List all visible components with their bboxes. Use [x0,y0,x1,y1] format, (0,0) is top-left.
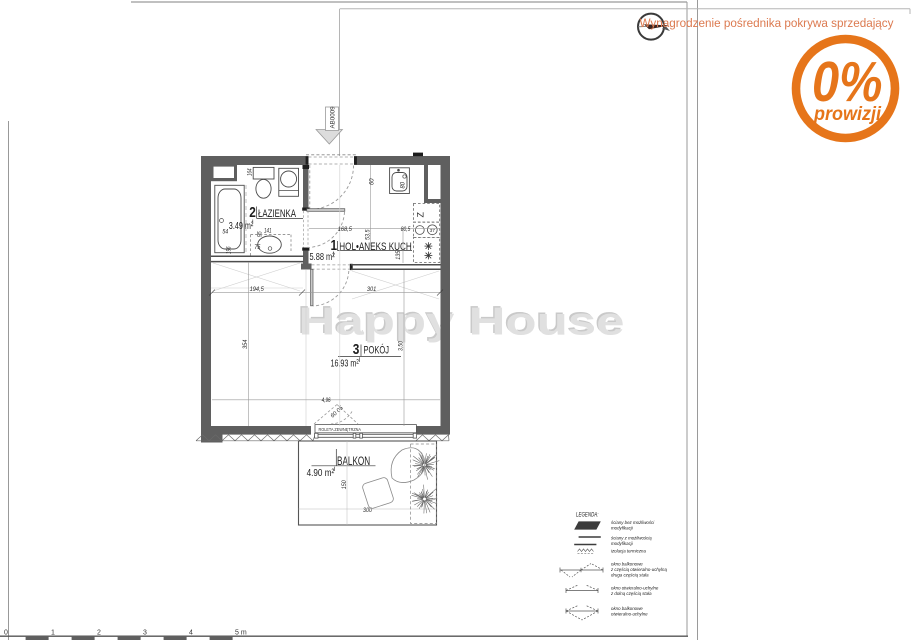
svg-text:354: 354 [242,339,249,349]
svg-text:300: 300 [363,507,372,514]
svg-text:0: 0 [4,630,8,637]
svg-text:141: 141 [264,228,272,235]
svg-text:5 m: 5 m [235,630,247,637]
svg-text:izolacja termiczna: izolacja termiczna [611,549,646,554]
svg-text:16.93 m²: 16.93 m² [331,359,360,370]
svg-text:Wynagrodzenie pośrednika pokry: Wynagrodzenie pośrednika pokrywa sprzeda… [640,16,895,30]
svg-text:3: 3 [143,630,147,637]
svg-text:80,5: 80,5 [401,226,411,233]
svg-text:okno otwieralno-uchylne: okno otwieralno-uchylne [611,586,659,591]
svg-text:80: 80 [399,182,406,189]
svg-text:95: 95 [257,231,264,237]
svg-text:prowizji: prowizji [813,103,881,125]
svg-text:POKÓJ: POKÓJ [364,344,390,357]
svg-text:53,5: 53,5 [364,229,371,240]
svg-text:ściany bez możliwości: ściany bez możliwości [611,520,655,525]
svg-text:2: 2 [97,630,101,637]
svg-text:z częścią otwieralno-uchylną: z częścią otwieralno-uchylną [610,567,667,572]
svg-text:3.49 m²: 3.49 m² [229,221,254,232]
svg-text:168,5: 168,5 [338,226,353,233]
svg-text:BALKON: BALKON [337,455,370,468]
svg-text:okno balkonowe: okno balkonowe [611,606,643,611]
svg-text:1: 1 [51,630,55,637]
svg-text:2: 2 [249,205,256,221]
svg-text:otwieralno-uchylne: otwieralno-uchylne [611,612,648,617]
svg-text:3,50: 3,50 [397,341,404,351]
svg-text:ROLETA ZEWNĘTRZNA: ROLETA ZEWNĘTRZNA [319,427,362,432]
svg-text:LEGENDA:: LEGENDA: [576,512,599,519]
svg-text:4,96: 4,96 [322,397,331,404]
svg-text:4: 4 [189,630,193,637]
svg-text:modyfikacji: modyfikacji [611,541,634,546]
svg-text:60: 60 [369,178,376,185]
svg-text:modyfikacji: modyfikacji [611,526,634,531]
svg-text:Z: Z [416,212,426,218]
svg-text:druga częścią stała: druga częścią stała [611,573,649,578]
svg-text:75: 75 [254,244,261,251]
svg-text:3: 3 [353,342,360,358]
svg-text:AB0009: AB0009 [329,106,336,129]
svg-text:5.88 m²: 5.88 m² [310,252,336,263]
svg-text:4.90 m²: 4.90 m² [307,468,335,479]
svg-text:301: 301 [367,286,377,293]
svg-text:54: 54 [222,229,228,236]
svg-text:135: 135 [395,250,402,259]
svg-text:164: 164 [246,168,253,176]
svg-text:Happy House: Happy House [299,301,625,344]
svg-text:196: 196 [225,246,232,254]
svg-text:z dolną częścią stała: z dolną częścią stała [610,591,652,596]
svg-text:194,5: 194,5 [250,286,265,293]
svg-text:ściany z możliwością: ściany z możliwością [611,536,652,541]
svg-text:okno balkonowe: okno balkonowe [611,562,643,567]
